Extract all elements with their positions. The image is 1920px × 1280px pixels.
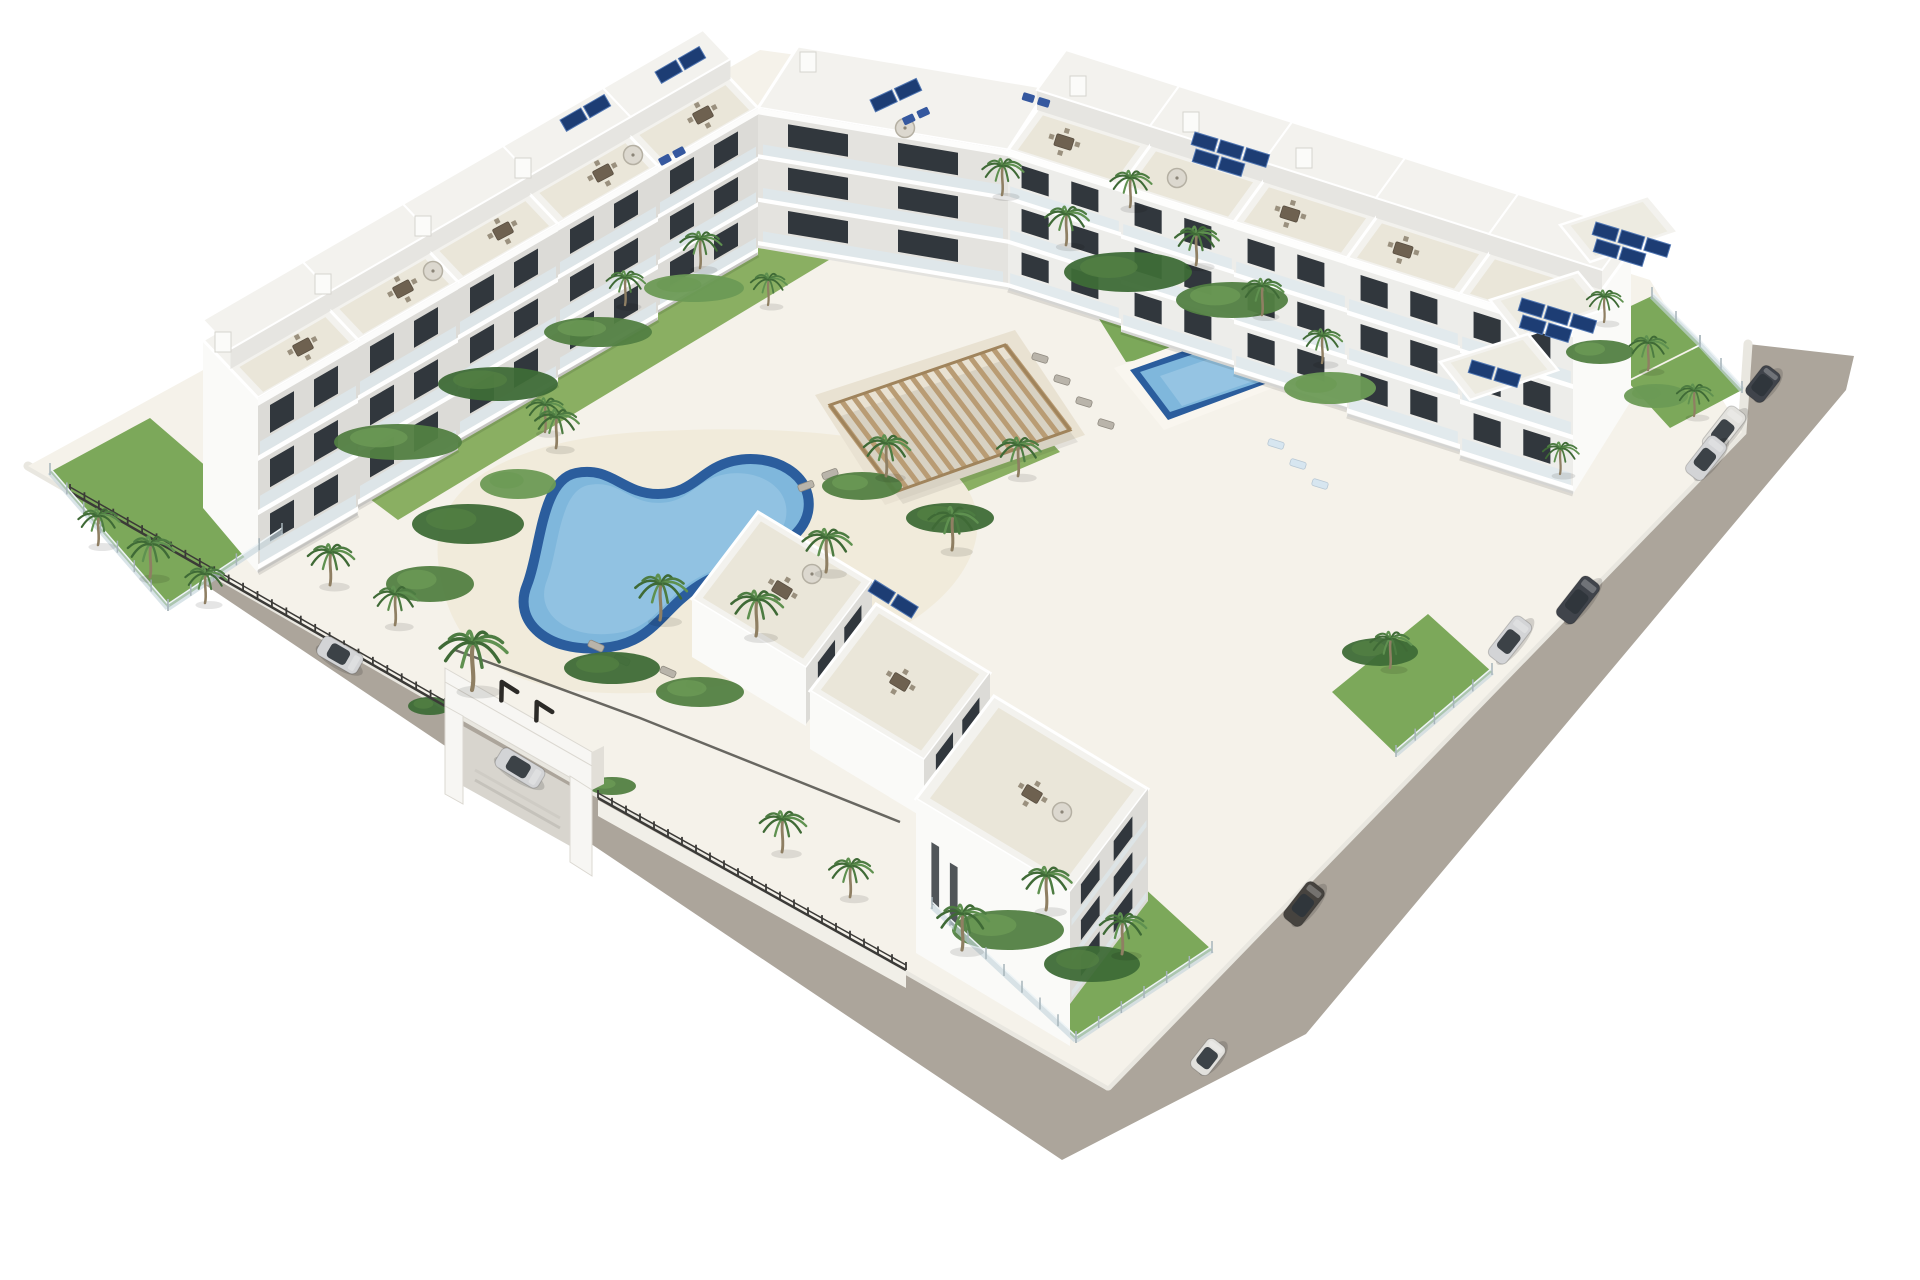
palm-shadow	[744, 633, 778, 643]
palm-shadow	[1639, 368, 1665, 376]
palm-trunk	[962, 914, 963, 950]
shrub	[558, 320, 607, 337]
shrub	[1056, 950, 1099, 970]
palm-shadow	[1252, 313, 1279, 321]
gate-pillar-left	[445, 706, 463, 804]
palm-trunk	[98, 516, 99, 545]
palm-shadow	[950, 947, 984, 957]
palm-shadow	[1120, 205, 1147, 213]
palm-shadow	[690, 266, 717, 274]
palm-shadow	[385, 623, 414, 632]
palm-trunk	[756, 600, 757, 636]
palm-trunk	[556, 417, 557, 448]
shrub	[1632, 386, 1661, 399]
stair-bulkhead	[1183, 112, 1199, 132]
parasol-pole	[431, 269, 434, 272]
palm-shadow	[319, 583, 350, 592]
palm-trunk	[395, 594, 396, 625]
palm-trunk	[472, 643, 473, 690]
palm-trunk	[952, 516, 953, 550]
palm-shadow	[992, 193, 1019, 201]
palm-shadow	[1008, 474, 1037, 483]
palm-shadow	[1380, 666, 1407, 674]
palm-trunk	[700, 239, 701, 268]
stair-bulkhead	[515, 158, 531, 178]
palm-trunk	[782, 820, 783, 852]
palm-shadow	[1596, 321, 1620, 328]
palm-shadow	[815, 569, 847, 579]
shrub	[657, 277, 702, 292]
palm-shadow	[456, 686, 500, 699]
shrub	[1190, 286, 1240, 306]
palm-trunk	[330, 553, 331, 585]
palm-trunk	[1130, 178, 1131, 207]
palm-shadow	[195, 601, 222, 609]
stair-bulkhead	[315, 274, 331, 294]
stair-bulkhead	[800, 52, 816, 72]
palm-shadow	[546, 446, 575, 455]
shrub	[453, 370, 507, 389]
palm-shadow	[1186, 263, 1215, 272]
palm-shadow	[1552, 473, 1576, 480]
palm-trunk	[1694, 391, 1695, 416]
palm-trunk	[1046, 876, 1047, 910]
palm-trunk	[1390, 639, 1391, 668]
palm-trunk	[1560, 449, 1561, 474]
palm-shadow	[941, 547, 973, 557]
shrub	[350, 428, 408, 448]
palm-shadow	[771, 850, 802, 859]
render-canvas	[0, 0, 1920, 1280]
gate-pillar-right	[570, 776, 592, 876]
palm-shadow	[840, 895, 869, 904]
palm-trunk	[1018, 445, 1019, 476]
parasol-pole	[1060, 810, 1063, 813]
palm-trunk	[1262, 286, 1263, 315]
palm-trunk	[660, 584, 661, 620]
stair-bulkhead	[1296, 148, 1312, 168]
parasol-pole	[810, 572, 813, 575]
shrub	[1080, 256, 1138, 278]
palm-shadow	[1035, 907, 1067, 917]
palm-trunk	[768, 280, 769, 305]
palm-shadow	[875, 474, 906, 483]
palm-shadow	[616, 303, 642, 311]
palm-shadow	[139, 575, 170, 584]
parasol-pole	[1175, 176, 1178, 179]
palm-shadow	[760, 304, 784, 311]
palm-trunk	[150, 545, 151, 577]
shrub	[426, 508, 476, 530]
palm-shadow	[1056, 243, 1085, 252]
palm-trunk	[886, 444, 887, 476]
palm-trunk	[545, 405, 546, 432]
aerial-render	[0, 0, 1920, 1280]
palm-trunk	[1122, 922, 1123, 954]
shrub	[667, 680, 707, 697]
palm-trunk	[1066, 214, 1067, 245]
stair-bulkhead	[1070, 76, 1086, 96]
palm-shadow	[1313, 361, 1339, 369]
stair-bulkhead	[415, 216, 431, 236]
shrub	[832, 475, 868, 490]
palm-trunk	[850, 866, 851, 897]
palm-shadow	[1111, 952, 1142, 961]
palm-shadow	[1686, 415, 1710, 422]
palm-shadow	[648, 617, 682, 627]
stair-bulkhead	[215, 332, 231, 352]
palm-trunk	[826, 538, 827, 572]
shrub	[414, 699, 434, 709]
palm-shadow	[88, 543, 115, 551]
shrub	[1575, 342, 1606, 355]
shrub	[576, 655, 619, 673]
parasol-pole	[903, 126, 906, 129]
palm-trunk	[1604, 297, 1605, 322]
gate-beam-end	[592, 746, 604, 790]
parasol-pole	[631, 153, 634, 156]
palm-trunk	[1002, 166, 1003, 195]
shrub	[1296, 375, 1337, 393]
palm-trunk	[1322, 336, 1323, 363]
solar-panel	[1644, 238, 1671, 257]
palm-trunk	[205, 574, 206, 603]
palm-trunk	[625, 278, 626, 305]
palm-trunk	[1196, 234, 1197, 265]
palm-trunk	[1648, 343, 1649, 370]
shrub	[490, 472, 524, 489]
